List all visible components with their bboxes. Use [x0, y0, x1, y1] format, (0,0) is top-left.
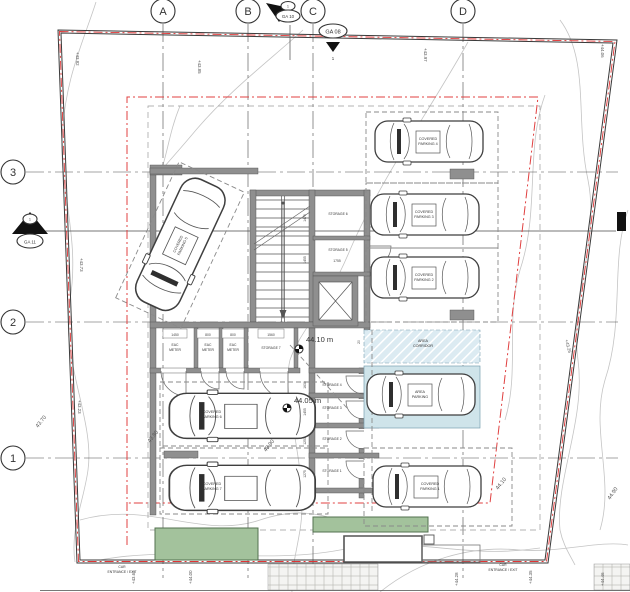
- contour-label: 44.10: [495, 477, 508, 492]
- bay-stub-wall: [450, 310, 474, 320]
- elevator: [313, 276, 358, 326]
- contour-label: 43.90: [263, 439, 276, 454]
- entrance-right-label: CAR: [499, 563, 507, 567]
- contour-line: [505, 95, 545, 420]
- grid-label-C: C: [309, 6, 317, 18]
- bay-stub-wall: [164, 451, 198, 458]
- floor-plan-page: COVERED PARKING 4 COVERED PARKING 3 COVE…: [0, 0, 630, 592]
- car-p2-label: PARKING 2: [414, 278, 433, 282]
- storage5-label: STORAGE 5: [328, 248, 347, 252]
- grid-label-B: B: [244, 6, 251, 18]
- car-area-label: PARKING: [412, 395, 428, 399]
- entrance-left-label: CAR: [118, 565, 126, 569]
- eac-meter-label: EAC: [230, 343, 238, 347]
- grid-label-D: D: [459, 6, 467, 18]
- eac-meter-label: METER: [227, 348, 239, 352]
- eac-meter-label: EAC: [172, 343, 180, 347]
- ga11-label: GA 11: [24, 240, 36, 245]
- section-end-marker: [617, 212, 626, 231]
- floor-plan-canvas: COVERED PARKING 4 COVERED PARKING 3 COVE…: [0, 0, 630, 592]
- ga10-num: 1: [287, 5, 289, 9]
- dim-storage-side: 1455: [303, 408, 307, 416]
- contour-line: [559, 20, 590, 565]
- car-p3-label: PARKING 3: [414, 215, 433, 219]
- meter-door: [161, 371, 186, 396]
- car-p4-label: PARKING 4: [418, 142, 437, 146]
- car-p7-label: COVERED: [203, 482, 222, 486]
- level-lower-label: 44.05 m: [294, 396, 321, 405]
- area-corridor-label: CORRIDOR: [413, 344, 433, 348]
- car-p1-label: COVERED: [421, 482, 440, 486]
- stair-break-line: [254, 206, 310, 250]
- eac-meter-label: EAC: [205, 343, 213, 347]
- spot-elevation: +43.62: [131, 570, 136, 584]
- spot-elevation: +43.23: [77, 400, 82, 414]
- grid-label-2: 2: [10, 317, 16, 329]
- spot-elevation: +44.46: [600, 572, 605, 586]
- storage-separator: [309, 488, 379, 493]
- storage-separator: [309, 453, 379, 458]
- entrance-right-label: ENTRANCE / EXIT: [488, 568, 517, 572]
- meter-door: [226, 371, 244, 389]
- storage-door-gap: [359, 374, 365, 393]
- bay-stub-wall: [450, 169, 474, 179]
- spot-elevation: +44.35: [528, 570, 533, 584]
- ga10-label: GA 10: [282, 14, 295, 19]
- meter-door-gap: [226, 368, 244, 372]
- spot-elevation: +44.00: [188, 570, 193, 584]
- car-p4-label: COVERED: [419, 137, 438, 141]
- staircase: [254, 196, 310, 322]
- level-upper-label: 44.10 m: [306, 335, 333, 344]
- spot-elevation: +43.82: [75, 52, 80, 66]
- meter-door-gap: [161, 368, 186, 372]
- spot-elevation: +43.85: [197, 60, 202, 74]
- eac-meter-label: METER: [169, 348, 181, 352]
- dim-storage: 1475: [303, 214, 307, 222]
- landscape: [40, 517, 630, 591]
- dim-storage: 1455: [303, 256, 307, 264]
- sidewalk-tiles-left: [268, 564, 378, 590]
- ga08-num: 1: [332, 56, 335, 61]
- eac-meter-label: METER: [202, 348, 214, 352]
- stair-wall-left: [250, 190, 256, 322]
- storage7-label: STORAGE 7: [261, 346, 280, 350]
- car-p7: [169, 462, 315, 514]
- dim-storage-side: 1250: [303, 437, 307, 445]
- car-p1-label: PARKING 1: [420, 487, 439, 491]
- dim-meter: 800: [205, 333, 211, 337]
- storage56-wall-right: [364, 190, 370, 330]
- wall-left: [150, 168, 156, 515]
- dim-meter: 1450: [171, 333, 179, 337]
- spot-elevation: +43.97: [423, 48, 428, 62]
- storage4-label: STORAGE 4: [322, 383, 341, 387]
- car-area-label: AREA: [415, 390, 426, 394]
- planter-center: [313, 517, 428, 532]
- ga11-num: 1: [29, 218, 31, 222]
- area-corridor-label: AREA: [418, 339, 429, 343]
- car-p6-label: PARKING 6: [202, 415, 221, 419]
- storage2-label: STORAGE 2: [322, 437, 341, 441]
- ramp-structure-wing: [422, 545, 480, 562]
- storage1-label: STORAGE 1: [322, 469, 341, 473]
- stair-arrow-head: [280, 310, 287, 319]
- storage-door-gap: [359, 429, 365, 448]
- car-p2-label: COVERED: [415, 273, 434, 277]
- dim-storage-side: 1630: [303, 381, 307, 389]
- meter-door-gap: [201, 368, 219, 372]
- storage56-divider: [313, 236, 370, 240]
- contour-label: 44.90: [607, 486, 620, 501]
- grid-label-A: A: [159, 6, 167, 18]
- spot-elevation: +44.06: [600, 44, 605, 58]
- dim-storage-side: 1275: [303, 470, 307, 478]
- meter-door-gap: [260, 368, 288, 372]
- storage56-bottom: [313, 272, 370, 276]
- ga08-label: GA 08: [325, 30, 340, 36]
- grid-label-1: 1: [10, 453, 16, 465]
- dim-meter: 800: [230, 333, 236, 337]
- dim-misc: 20: [357, 340, 361, 344]
- spot-elevation: +43.26: [564, 339, 572, 354]
- grid-label-3: 3: [10, 167, 16, 179]
- ramp-post: [424, 535, 434, 544]
- storage6-label: STORAGE 6: [328, 212, 347, 216]
- meter-door: [201, 371, 219, 389]
- contour-label: 43.70: [35, 415, 48, 430]
- ramp-structure: [344, 536, 422, 562]
- planter-left: [155, 528, 258, 560]
- storage-door-gap: [359, 399, 365, 418]
- spot-elevation: +43.73: [79, 258, 84, 272]
- car-p3-label: COVERED: [415, 210, 434, 214]
- dim-storage: 1755: [333, 259, 341, 263]
- spot-elevation: +44.28: [454, 572, 459, 586]
- storage3-label: STORAGE 3: [322, 406, 341, 410]
- meter-partition: [244, 328, 248, 368]
- car-p7-label: PARKING 7: [202, 487, 221, 491]
- contour-line: [600, 210, 628, 530]
- dim-meter: 1560: [267, 333, 275, 337]
- stair-steps: [256, 200, 309, 317]
- car-p6-label: COVERED: [203, 410, 222, 414]
- contour-line: [160, 30, 303, 172]
- ga08-arrow-icon: [326, 42, 340, 52]
